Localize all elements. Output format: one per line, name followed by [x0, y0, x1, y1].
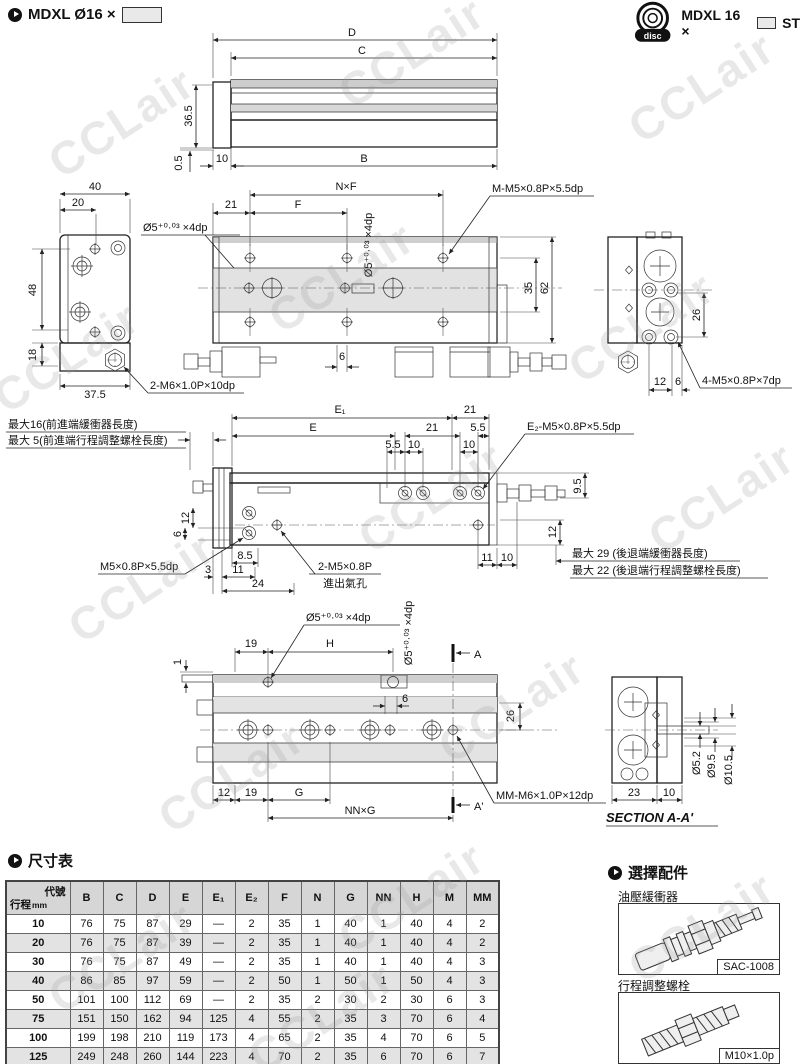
dim-value: 69	[169, 991, 202, 1010]
col-header: H	[400, 881, 433, 915]
dim-value: 162	[136, 1010, 169, 1029]
dim-value: 40	[334, 915, 367, 934]
dim-12: 12	[654, 376, 666, 388]
dim-21: 21	[225, 199, 237, 211]
table-row: 12524924826014422347023567067	[6, 1048, 499, 1064]
drawing-side-view-ports: E₁ 21 E 21 5.5 5.5 10 10 E₂-M5×0.8P×5.5d…	[6, 404, 768, 595]
model-header-right: disc MDXL 16 × ST	[630, 0, 800, 46]
dim-value: 4	[235, 1010, 268, 1029]
dim-value: 4	[433, 934, 466, 953]
accessories-title: 選擇配件	[608, 862, 688, 883]
dim-value: 49	[169, 953, 202, 972]
dim-18: 18	[27, 349, 39, 361]
dim-10: 10	[501, 552, 513, 564]
dim-value: 87	[136, 953, 169, 972]
dim-value: 85	[103, 972, 136, 991]
dim-20: 20	[72, 197, 84, 209]
dim-value: 70	[400, 1048, 433, 1064]
dim-value: 39	[169, 934, 202, 953]
dim-G: G	[295, 787, 304, 799]
max22-label: 最大 22 (後退端行程調整螺栓長度)	[572, 563, 741, 577]
table-row: 3076758749—23514014043	[6, 953, 499, 972]
dim-value: 4	[433, 915, 466, 934]
col-header: M	[433, 881, 466, 915]
table-row: 1076758729—23514014042	[6, 915, 499, 934]
dimension-table-title: 尺寸表	[8, 850, 73, 871]
dim-value: 35	[334, 1010, 367, 1029]
table-row: 4086859759—25015015043	[6, 972, 499, 991]
dim-value: 2	[301, 1029, 334, 1048]
dim-10: 10	[463, 439, 475, 451]
dim-value: 50	[334, 972, 367, 991]
dim-value: 3	[466, 991, 499, 1010]
dim-value: 70	[400, 1010, 433, 1029]
drawing-section-aa: Ø5.2 Ø9.5 Ø10.5 23 10 SECTION A-A'	[605, 677, 736, 826]
dim-C: C	[358, 45, 366, 57]
dim-value: 40	[400, 915, 433, 934]
dim-9-5: 9.5	[572, 478, 584, 493]
logo-disc-text: disc	[644, 31, 662, 41]
dim-value: 1	[301, 972, 334, 991]
dim-value: 198	[103, 1029, 136, 1048]
dim-value: 2	[235, 953, 268, 972]
max16-label: 最大16(前進端緩衝器長度)	[8, 417, 138, 431]
dim-value: 75	[103, 915, 136, 934]
dim-value: 87	[136, 934, 169, 953]
dowel-hole-label: Ø5⁺⁰·⁰³ ×4dp	[143, 222, 207, 234]
shock-absorber-model: SAC-1008	[717, 959, 779, 974]
dim-1: 1	[172, 659, 184, 665]
dim-6: 6	[172, 531, 184, 537]
model-suffix: ST	[782, 15, 800, 31]
dim-dia-9-5: Ø9.5	[706, 754, 718, 778]
dim-value: 35	[334, 1029, 367, 1048]
stroke-placeholder-box	[122, 7, 162, 23]
dim-10: 10	[216, 153, 228, 165]
dim-6: 6	[339, 351, 345, 363]
dim-value: 30	[400, 991, 433, 1010]
dim-value: 7	[466, 1048, 499, 1064]
table-row: 751511501629412545523537064	[6, 1010, 499, 1029]
dim-value: 86	[70, 972, 103, 991]
dim-value: 70	[400, 1029, 433, 1048]
stroke-bolt-model: M10×1.0p	[719, 1048, 779, 1063]
dim-value: 3	[466, 972, 499, 991]
dim-value: 3	[367, 1010, 400, 1029]
thread-mm-label: MM-M6×1.0P×12dp	[496, 790, 593, 802]
dim-dia-10-5: Ø10.5	[723, 755, 735, 785]
col-header: G	[334, 881, 367, 915]
dim-value: 1	[367, 972, 400, 991]
dim-5-5: 5.5	[470, 422, 485, 434]
dim-value: 6	[433, 1010, 466, 1029]
dim-value: 1	[301, 915, 334, 934]
bullet-icon	[8, 854, 22, 868]
dim-value: 75	[103, 934, 136, 953]
dim-value: 2	[466, 915, 499, 934]
dim-value: 30	[334, 991, 367, 1010]
dim-value: 2	[235, 915, 268, 934]
dim-24: 24	[252, 578, 264, 590]
dim-value: 59	[169, 972, 202, 991]
dim-value: 6	[433, 1048, 466, 1064]
dim-0-5: 0.5	[173, 155, 185, 170]
dim-value: 2	[301, 1010, 334, 1029]
dim-23: 23	[628, 787, 640, 799]
thread-m-label: M-M5×0.8P×5.5dp	[492, 183, 583, 195]
dim-H: H	[326, 638, 334, 650]
dim-value: 199	[70, 1029, 103, 1048]
dim-11: 11	[481, 552, 492, 564]
col-header: E₁	[202, 881, 235, 915]
dim-NNxG: NN×G	[345, 805, 376, 817]
dim-value: 1	[301, 953, 334, 972]
dim-value: 6	[433, 991, 466, 1010]
dim-value: —	[202, 972, 235, 991]
col-header: B	[70, 881, 103, 915]
air-port-name-label: 進出氣孔	[323, 576, 367, 590]
dim-value: 35	[334, 1048, 367, 1064]
dim-12: 12	[180, 512, 192, 524]
datasheet-page: CCLair CCLair CCLair CCLair CCLair CCLai…	[0, 0, 800, 1064]
stroke-value: 30	[6, 953, 70, 972]
dim-value: 6	[367, 1048, 400, 1064]
dim-value: 50	[400, 972, 433, 991]
stroke-value: 50	[6, 991, 70, 1010]
stroke-value: 20	[6, 934, 70, 953]
dim-value: 55	[268, 1010, 301, 1029]
air-port-thread-label: 2-M5×0.8P	[318, 561, 372, 573]
dim-value: 35	[268, 915, 301, 934]
dim-value: 1	[301, 934, 334, 953]
dim-value: 97	[136, 972, 169, 991]
dim-D: D	[348, 27, 356, 39]
table-header-row: 代號 行程mm BCDEE₁E₂FNGNNHMMM	[6, 881, 499, 915]
dim-35: 35	[523, 282, 535, 294]
section-mark-A-prime: A'	[474, 801, 483, 813]
drawing-right-end-view: 26 4-M5×0.8P×7dp 12 6	[594, 232, 792, 396]
dim-40: 40	[89, 181, 101, 193]
corner-code-label: 代號	[45, 884, 66, 899]
dim-E1: E₁	[334, 404, 345, 416]
thread-m5-label: M5×0.8P×5.5dp	[100, 561, 178, 573]
section-mark-A: A	[474, 649, 482, 661]
dim-value: 119	[169, 1029, 202, 1048]
stroke-value: 40	[6, 972, 70, 991]
dim-value: 101	[70, 991, 103, 1010]
dim-value: 75	[103, 953, 136, 972]
col-header: NN	[367, 881, 400, 915]
dowel-hole-label: Ø5⁺⁰·⁰³ ×4dp	[306, 612, 370, 624]
dim-value: 4	[367, 1029, 400, 1048]
corner-stroke-label: 行程mm	[10, 897, 47, 912]
dim-value: 40	[400, 934, 433, 953]
dim-6: 6	[402, 693, 408, 705]
dim-value: 248	[103, 1048, 136, 1064]
dim-value: —	[202, 915, 235, 934]
table-row: 5010110011269—23523023063	[6, 991, 499, 1010]
model-header-left: MDXL Ø16 ×	[8, 6, 162, 23]
dim-value: 5	[466, 1029, 499, 1048]
bullet-icon	[8, 8, 22, 22]
dim-value: 1	[367, 915, 400, 934]
dim-value: 125	[202, 1010, 235, 1029]
technical-drawing: D C 36.5 0.5 10 B	[0, 0, 800, 845]
drawing-side-elevation: D C 36.5 0.5 10 B	[173, 27, 497, 172]
dim-value: 1	[367, 934, 400, 953]
dim-value: 6	[433, 1029, 466, 1048]
dim-value: 76	[70, 953, 103, 972]
dim-value: 144	[169, 1048, 202, 1064]
col-header: N	[301, 881, 334, 915]
thread-4m5-label: 4-M5×0.8P×7dp	[702, 375, 781, 387]
dim-E: E	[309, 422, 316, 434]
dim-26: 26	[691, 309, 703, 321]
accessories-title-text: 選擇配件	[628, 862, 688, 883]
dim-value: 112	[136, 991, 169, 1010]
dim-value: 4	[235, 1048, 268, 1064]
dim-value: 249	[70, 1048, 103, 1064]
dim-NxF: N×F	[335, 181, 356, 193]
dim-value: 151	[70, 1010, 103, 1029]
col-header: D	[136, 881, 169, 915]
dim-19: 19	[245, 787, 257, 799]
dim-value: 40	[334, 953, 367, 972]
dim-value: 4	[235, 1029, 268, 1048]
stroke-value: 10	[6, 915, 70, 934]
model-title: MDXL Ø16 ×	[28, 6, 116, 23]
dowel-hole-label-vertical: Ø5⁺⁰·⁰³ ×4dp	[403, 601, 415, 665]
dim-value: 100	[103, 991, 136, 1010]
dim-value: 173	[202, 1029, 235, 1048]
dim-value: 70	[268, 1048, 301, 1064]
dim-12: 12	[547, 526, 559, 538]
max29-label: 最大 29 (後退端緩衝器長度)	[572, 546, 708, 560]
dim-value: 35	[268, 991, 301, 1010]
dim-8-5: 8.5	[237, 550, 252, 562]
model-code: MDXL 16 ×	[681, 7, 751, 39]
dim-19: 19	[245, 638, 257, 650]
dim-value: 150	[103, 1010, 136, 1029]
dim-value: 4	[466, 1010, 499, 1029]
col-header: E₂	[235, 881, 268, 915]
dim-11: 11	[232, 564, 243, 576]
stroke-value: 75	[6, 1010, 70, 1029]
shock-absorber-box: SAC-1008	[618, 903, 780, 975]
dim-value: 35	[268, 934, 301, 953]
dim-value: 94	[169, 1010, 202, 1029]
dim-12: 12	[218, 787, 230, 799]
dim-value: 2	[301, 991, 334, 1010]
dim-value: 2	[235, 972, 268, 991]
dim-value: 29	[169, 915, 202, 934]
thread-2m6-label: 2-M6×1.0P×10dp	[150, 380, 235, 392]
drawing-bottom-view: 19 H Ø5⁺⁰·⁰³ ×4dp Ø5⁺⁰·⁰³ ×4dp 1 6 26	[172, 601, 606, 822]
dim-value: —	[202, 953, 235, 972]
dim-value: 3	[466, 953, 499, 972]
corner-header-cell: 代號 行程mm	[6, 881, 70, 915]
disc-logo-icon: disc	[630, 0, 675, 46]
dim-value: 223	[202, 1048, 235, 1064]
table-row: 10019919821011917346523547065	[6, 1029, 499, 1048]
table-row: 2076758739—23514014042	[6, 934, 499, 953]
dim-value: 87	[136, 915, 169, 934]
dim-B: B	[360, 153, 367, 165]
dim-value: 50	[268, 972, 301, 991]
dim-value: —	[202, 934, 235, 953]
thread-e2-label: E₂-M5×0.8P×5.5dp	[527, 421, 621, 433]
bullet-icon	[608, 866, 622, 880]
dim-value: 2	[235, 934, 268, 953]
dimension-table-title-text: 尺寸表	[28, 850, 73, 871]
dim-value: 4	[433, 972, 466, 991]
dim-value: 40	[334, 934, 367, 953]
dim-value: 65	[268, 1029, 301, 1048]
dim-48: 48	[27, 284, 39, 296]
dimension-table: 代號 行程mm BCDEE₁E₂FNGNNHMMM 1076758729—235…	[5, 880, 500, 1064]
dim-value: 2	[367, 991, 400, 1010]
dim-26: 26	[505, 710, 517, 722]
drawing-top-view: N×F 21 F Ø5⁺⁰·⁰³ ×4dp M-M5×0.8P×5.5dp 35…	[184, 181, 594, 377]
section-title: SECTION A-A'	[606, 810, 694, 825]
dim-10: 10	[663, 787, 675, 799]
dim-value: 1	[367, 953, 400, 972]
dim-value: 35	[268, 953, 301, 972]
max5-label: 最大 5(前進端行程調整螺栓長度)	[8, 433, 168, 447]
col-header: F	[268, 881, 301, 915]
dim-dia-5-2: Ø5.2	[691, 751, 703, 775]
dim-62: 62	[539, 282, 551, 294]
col-header: MM	[466, 881, 499, 915]
dim-37-5: 37.5	[84, 389, 105, 401]
dim-value: 4	[433, 953, 466, 972]
dim-10: 10	[408, 439, 420, 451]
dim-value: 2	[235, 991, 268, 1010]
dim-value: 260	[136, 1048, 169, 1064]
dim-21: 21	[426, 422, 438, 434]
stroke-bolt-box: M10×1.0p	[618, 992, 780, 1064]
col-header: E	[169, 881, 202, 915]
dim-F: F	[295, 199, 302, 211]
stroke-placeholder-box	[757, 17, 776, 29]
dim-value: 2	[301, 1048, 334, 1064]
dim-6: 6	[675, 376, 681, 388]
dim-21: 21	[464, 404, 476, 416]
dim-value: 40	[400, 953, 433, 972]
dim-value: 210	[136, 1029, 169, 1048]
table-body: 1076758729—235140140422076758739—2351401…	[6, 915, 499, 1064]
stroke-value: 125	[6, 1048, 70, 1064]
dowel-hole-label-vertical: Ø5⁺⁰·⁰³ ×4dp	[363, 213, 375, 277]
dim-36-5: 36.5	[183, 105, 195, 126]
col-header: C	[103, 881, 136, 915]
dim-value: 2	[466, 934, 499, 953]
dim-value: 76	[70, 934, 103, 953]
dim-value: —	[202, 991, 235, 1010]
stroke-value: 100	[6, 1029, 70, 1048]
dim-3: 3	[205, 564, 211, 576]
dim-value: 76	[70, 915, 103, 934]
dim-5-5: 5.5	[385, 439, 400, 451]
